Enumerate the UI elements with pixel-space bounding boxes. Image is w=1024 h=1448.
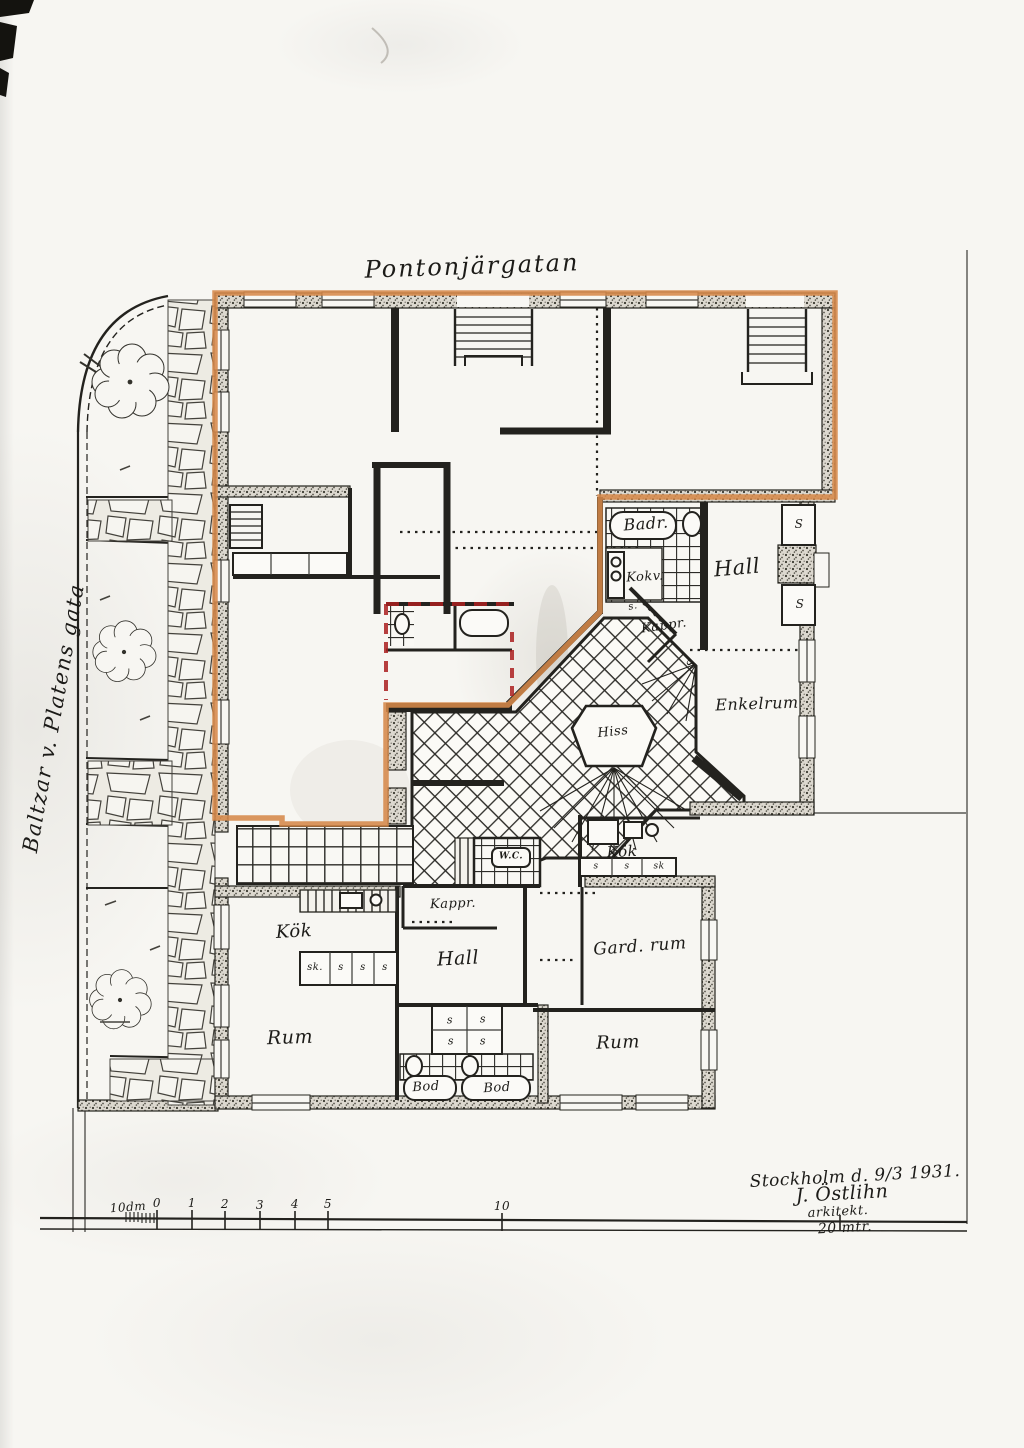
- closet-label-sk-kok: sk: [653, 863, 664, 872]
- closet-label-s-grid2: s: [480, 1014, 486, 1025]
- scale-label-0: 0: [153, 1197, 161, 1209]
- closet-label-s-grid1: s: [447, 1015, 453, 1026]
- scale-label-10dm: 10dm: [109, 1200, 146, 1215]
- closet-label-s-1: S: [795, 518, 804, 530]
- room-label-bod-2: Bod: [483, 1081, 511, 1095]
- scale-label-10: 10: [494, 1200, 510, 1212]
- scale-label-3: 3: [256, 1199, 264, 1211]
- closet-label-s-grid3: s: [448, 1036, 454, 1047]
- scale-label-4: 4: [291, 1198, 299, 1210]
- signature-name: J. Östlihn: [795, 1182, 889, 1206]
- closet-label-s-row3: s: [382, 963, 388, 973]
- signature-title: arkitekt.: [807, 1204, 868, 1220]
- room-label-rum-left: Rum: [267, 1028, 314, 1049]
- room-label-kokv: Kokv.: [626, 570, 664, 585]
- closet-label-s-grid4: s: [480, 1036, 486, 1047]
- room-label-hiss: Hiss: [597, 724, 629, 740]
- scale-label-1: 1: [188, 1197, 196, 1209]
- closet-label-s-kok1: s: [593, 863, 598, 872]
- room-label-enkelrum: Enkelrum: [715, 695, 799, 714]
- room-label-wc: W.C.: [499, 853, 523, 862]
- closet-label-s-small: s.: [627, 601, 638, 613]
- scale-label-5: 5: [324, 1198, 332, 1210]
- room-label-hall-lower: Hall: [437, 948, 480, 969]
- closet-label-s-kok2: s: [624, 863, 629, 872]
- room-label-badr: Badr.: [623, 514, 669, 533]
- room-label-rum-right: Rum: [596, 1033, 640, 1053]
- closet-label-sk-left: sk.: [307, 963, 323, 973]
- room-label-kok-left: Kök: [275, 922, 312, 942]
- closet-label-s-2: S: [796, 598, 805, 610]
- closet-label-s-row1: s: [338, 963, 344, 973]
- scale-label-20mtr: 20 mtr.: [818, 1220, 873, 1237]
- garden-trees: [80, 344, 169, 1029]
- room-label-kok-right: Kök: [606, 844, 637, 861]
- closet-label-s-row2: s: [360, 963, 366, 973]
- street-label-top: Pontonjärgatan: [364, 250, 580, 281]
- room-label-kappr-lower: Kappr.: [430, 897, 476, 912]
- scale-label-2: 2: [221, 1198, 229, 1210]
- floorplan-scan-page: Pontonjärgatan Baltzar v. Platens gata B…: [0, 0, 1024, 1448]
- room-label-hall-upper: Hall: [713, 556, 761, 581]
- room-label-bod-1: Bod: [412, 1080, 440, 1094]
